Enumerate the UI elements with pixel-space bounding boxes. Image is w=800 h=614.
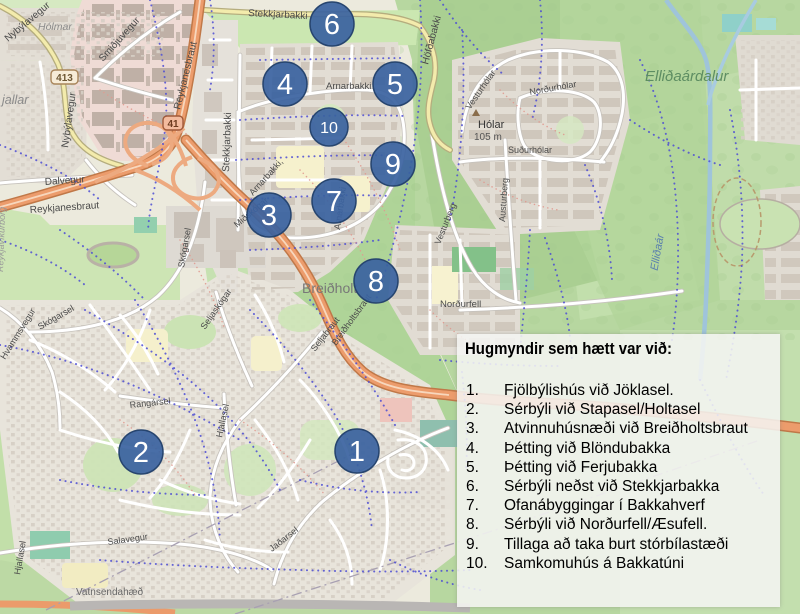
svg-text:1: 1 <box>349 436 365 468</box>
svg-text:4: 4 <box>277 69 293 101</box>
svg-text:Vatnsendahæð: Vatnsendahæð <box>76 586 144 598</box>
svg-text:Arnarbakki: Arnarbakki <box>326 81 371 92</box>
svg-text:Elliðaárdalur: Elliðaárdalur <box>645 68 729 85</box>
svg-text:Suðurhólar: Suðurhólar <box>508 145 552 155</box>
svg-text:Stekkjarbakki: Stekkjarbakki <box>221 112 234 172</box>
svg-text:Norðurfell: Norðurfell <box>440 299 481 310</box>
svg-text:41: 41 <box>167 119 179 130</box>
svg-text:Breiðholt: Breiðholt <box>302 280 357 296</box>
svg-text:Hólmar: Hólmar <box>38 21 72 33</box>
svg-text:Hólar: Hólar <box>478 119 505 131</box>
svg-text:3: 3 <box>261 200 277 232</box>
svg-text:7: 7 <box>326 186 342 218</box>
svg-text:2: 2 <box>133 437 149 469</box>
svg-text:6: 6 <box>324 9 340 41</box>
svg-text:5: 5 <box>387 69 403 101</box>
svg-text:jallar: jallar <box>0 93 29 107</box>
svg-text:9: 9 <box>385 149 401 181</box>
svg-text:105 m: 105 m <box>474 132 502 143</box>
svg-text:8: 8 <box>368 266 384 298</box>
svg-text:10: 10 <box>320 120 338 137</box>
svg-text:413: 413 <box>56 73 73 84</box>
